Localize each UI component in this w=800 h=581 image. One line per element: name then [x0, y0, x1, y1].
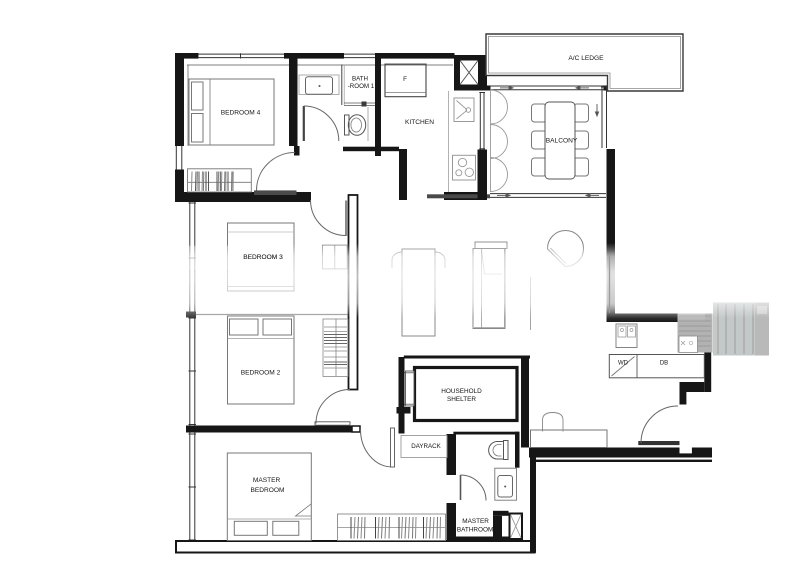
svg-text:MASTER: MASTER: [253, 477, 281, 484]
svg-text:BEDROOM 4: BEDROOM 4: [221, 110, 261, 117]
svg-text:-ROOM 1: -ROOM 1: [348, 83, 375, 90]
svg-text:SHELTER: SHELTER: [447, 396, 476, 403]
svg-text:HOUSEHOLD: HOUSEHOLD: [441, 388, 482, 395]
svg-text:DAYRACK: DAYRACK: [411, 443, 441, 450]
svg-text:MASTER: MASTER: [462, 518, 489, 525]
svg-text:BALCONY: BALCONY: [546, 138, 578, 145]
svg-text:BATH: BATH: [352, 76, 368, 83]
svg-text:BEDROOM: BEDROOM: [250, 487, 284, 494]
svg-text:WD: WD: [618, 360, 629, 366]
svg-text:BEDROOM 2: BEDROOM 2: [241, 370, 281, 377]
svg-text:A/C LEDGE: A/C LEDGE: [568, 55, 604, 62]
svg-text:BATHROOM: BATHROOM: [457, 526, 493, 533]
svg-text:BEDROOM 3: BEDROOM 3: [243, 254, 283, 261]
svg-text:KITCHEN: KITCHEN: [405, 119, 434, 126]
svg-text:DB: DB: [660, 361, 668, 367]
svg-text:F: F: [403, 76, 407, 83]
